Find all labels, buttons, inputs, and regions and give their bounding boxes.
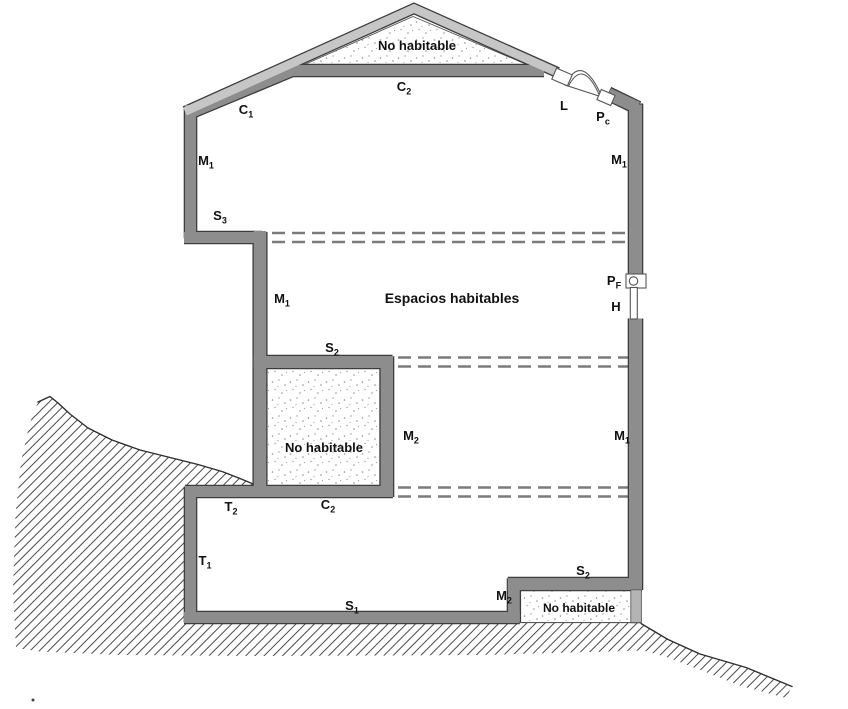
- label-main-space: Espacios habitables: [385, 290, 520, 306]
- label-c2-attic: C2: [397, 79, 411, 97]
- label-window-h: H: [611, 299, 620, 314]
- shutter-roller-icon: [629, 277, 637, 285]
- label-m1-mid-left: M1: [274, 291, 290, 309]
- label-c1: C1: [239, 102, 253, 120]
- label-s2-mid: S2: [325, 340, 339, 358]
- skylight-frame-left: [552, 68, 572, 86]
- wall-outlines: [184, 9, 642, 623]
- label-m1-upper-right: M1: [611, 152, 627, 170]
- label-m1-lower-right: M1: [614, 428, 630, 446]
- print-artifact-dot: [32, 699, 35, 702]
- label-s3: S3: [213, 208, 227, 226]
- label-crawl-space: No habitable: [543, 601, 615, 615]
- left-nonhabitable-space: [266, 368, 381, 487]
- label-t1: T1: [199, 553, 212, 571]
- crawl-right-wall: [631, 590, 642, 623]
- label-s1: S1: [345, 598, 359, 616]
- label-m2-left-box: M2: [403, 428, 419, 446]
- label-pf: PF: [607, 273, 622, 291]
- window-assembly: [626, 274, 646, 319]
- label-s2-bottom-right: S2: [576, 563, 590, 581]
- label-left-box-space: No habitable: [285, 440, 363, 455]
- label-pc: Pc: [596, 109, 610, 127]
- label-t2: T2: [225, 499, 238, 517]
- label-attic-space: No habitable: [378, 38, 456, 53]
- label-skylight: L: [560, 98, 568, 113]
- section-drawing: No habitable Espacios habitables No habi…: [0, 0, 848, 709]
- label-m1-upper-left: M1: [198, 153, 214, 171]
- window-glazing: [630, 288, 637, 320]
- label-c2-lower: C2: [321, 497, 335, 515]
- thermal-envelope-diagram: No habitable Espacios habitables No habi…: [0, 0, 848, 709]
